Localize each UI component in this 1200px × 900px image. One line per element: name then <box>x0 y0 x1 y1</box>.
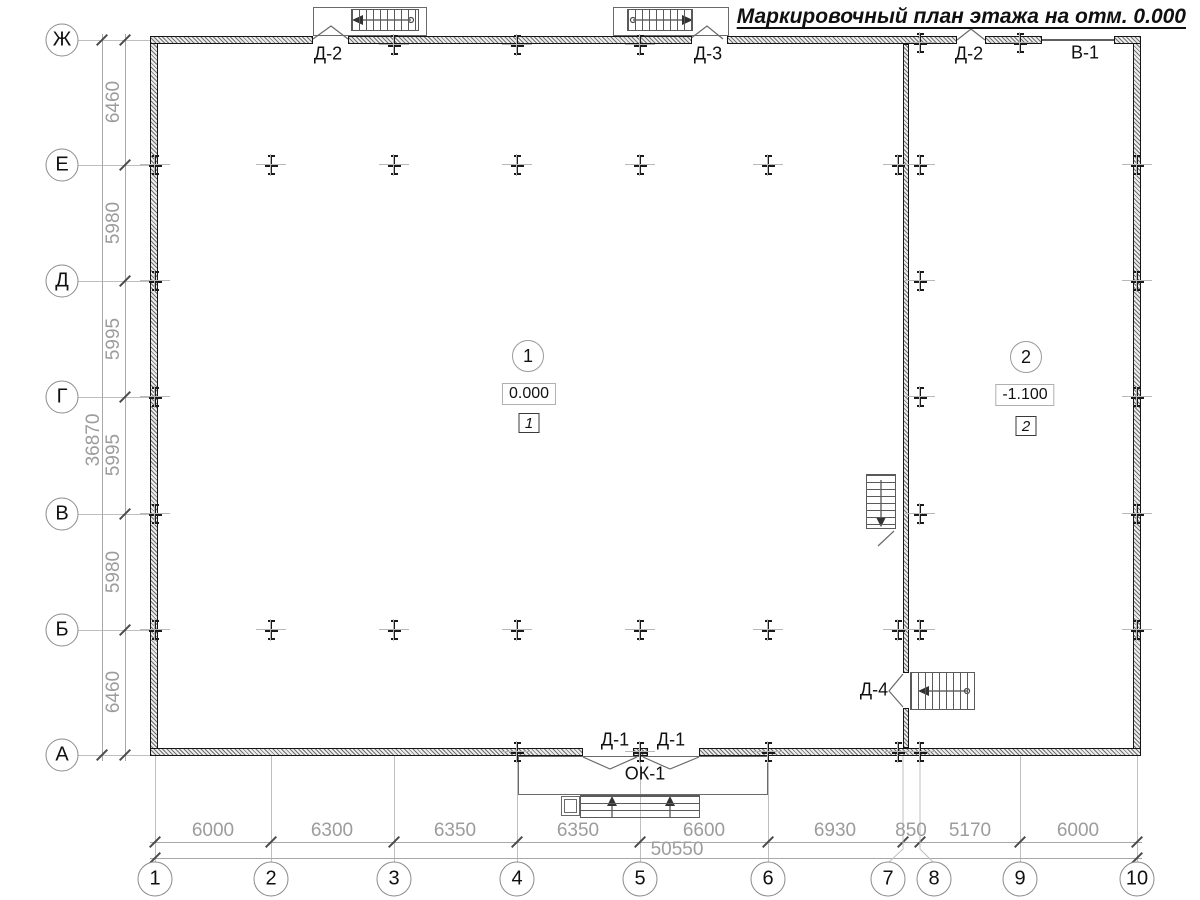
room-elevation: -1.100 <box>995 384 1054 406</box>
room-elevation: 0.000 <box>502 383 556 405</box>
dim-label: 5980 <box>103 551 125 593</box>
column-marker <box>379 619 409 641</box>
bent-grid-leaders <box>888 756 934 863</box>
dim-label: 5980 <box>103 202 125 244</box>
column-marker <box>502 34 532 56</box>
dim-label: 850 <box>895 820 927 842</box>
porch-steps <box>580 795 700 818</box>
grid-col-bubble: 1 <box>138 862 173 897</box>
column-marker <box>905 32 935 54</box>
door-label-d1-left: Д-1 <box>601 730 629 751</box>
column-marker <box>625 34 655 56</box>
wall-divider <box>903 44 909 673</box>
grid-row-bubble: В <box>46 498 79 531</box>
door-swings <box>313 26 985 769</box>
dim-total-label: 36870 <box>83 414 105 467</box>
column-marker <box>905 619 935 641</box>
column-marker <box>905 154 935 176</box>
floor-plan-drawing: Маркировочный план этажа на отм. 0.000 Ж… <box>0 0 1200 900</box>
grid-col-bubble: 2 <box>254 862 289 897</box>
column-marker <box>502 154 532 176</box>
wall-top <box>1114 36 1141 44</box>
column-marker <box>625 619 655 641</box>
dim-label: 6000 <box>192 820 234 842</box>
column-marker <box>502 619 532 641</box>
column-marker <box>1122 386 1152 408</box>
dim-total-label: 50550 <box>651 839 704 861</box>
door-label-d3-top: Д-3 <box>694 44 722 65</box>
grid-row-bubble: Г <box>46 381 79 414</box>
grid-col-bubble: 3 <box>377 862 412 897</box>
room-zone-box: 1 <box>519 413 540 433</box>
dim-label: 6460 <box>103 81 125 123</box>
column-marker <box>256 619 286 641</box>
dim-label: 5170 <box>949 820 991 842</box>
stair-top-left <box>351 9 419 31</box>
column-marker <box>905 741 935 763</box>
dim-label: 6350 <box>557 820 599 842</box>
door-label-d2-top-right: Д-2 <box>955 44 983 65</box>
column-marker <box>1122 503 1152 525</box>
column-marker <box>905 270 935 292</box>
wall-top <box>150 36 313 44</box>
dim-label: 6930 <box>814 820 856 842</box>
column-marker <box>140 154 170 176</box>
gate-label-v1: В-1 <box>1071 43 1099 64</box>
column-marker <box>1005 32 1035 54</box>
grid-row-bubble: А <box>46 739 79 772</box>
column-marker <box>379 34 409 56</box>
grid-row-bubble: Е <box>46 149 79 182</box>
column-marker <box>1122 270 1152 292</box>
stair-top-right <box>627 9 693 31</box>
stair-arrowheads <box>352 15 929 806</box>
dim-label: 5995 <box>103 434 125 476</box>
door-label-d1-right: Д-1 <box>657 730 685 751</box>
column-marker <box>140 503 170 525</box>
grid-row-bubble: Б <box>46 614 79 647</box>
column-marker <box>905 503 935 525</box>
grid-col-bubble: 7 <box>871 862 906 897</box>
grid-row-bubble: Ж <box>46 24 79 57</box>
column-marker <box>625 741 655 763</box>
grid-col-bubble: 5 <box>623 862 658 897</box>
dim-label: 6460 <box>103 671 125 713</box>
grid-row-bubble: Д <box>46 265 79 298</box>
grid-col-bubble: 6 <box>751 862 786 897</box>
dim-label: 6000 <box>1057 820 1099 842</box>
column-marker <box>256 154 286 176</box>
column-marker <box>140 270 170 292</box>
porch-label-ok1: ОК-1 <box>625 764 666 785</box>
column-marker <box>1122 154 1152 176</box>
grid-col-bubble: 9 <box>1003 862 1038 897</box>
porch-ramp <box>561 796 580 816</box>
column-marker <box>379 154 409 176</box>
column-marker <box>625 154 655 176</box>
room-number-circle: 2 <box>1010 341 1042 373</box>
dim-label: 6300 <box>311 820 353 842</box>
column-marker <box>905 386 935 408</box>
column-marker <box>502 741 532 763</box>
column-marker <box>753 741 783 763</box>
stair-divider-door <box>910 672 975 710</box>
column-marker <box>140 619 170 641</box>
room-zone-box: 2 <box>1016 416 1037 436</box>
dim-label: 5995 <box>103 318 125 360</box>
column-marker <box>753 154 783 176</box>
column-marker <box>1122 619 1152 641</box>
door-label-d2-top-left: Д-2 <box>314 44 342 65</box>
drawing-title: Маркировочный план этажа на отм. 0.000 <box>737 5 1186 29</box>
grid-col-bubble: 10 <box>1120 862 1155 897</box>
column-marker <box>753 619 783 641</box>
door-label-d4: Д-4 <box>860 680 888 701</box>
dim-label: 6350 <box>434 820 476 842</box>
grid-col-bubble: 4 <box>500 862 535 897</box>
stair-interior <box>866 474 896 529</box>
column-marker <box>140 386 170 408</box>
grid-col-bubble: 8 <box>917 862 952 897</box>
room-number-circle: 1 <box>512 340 544 372</box>
